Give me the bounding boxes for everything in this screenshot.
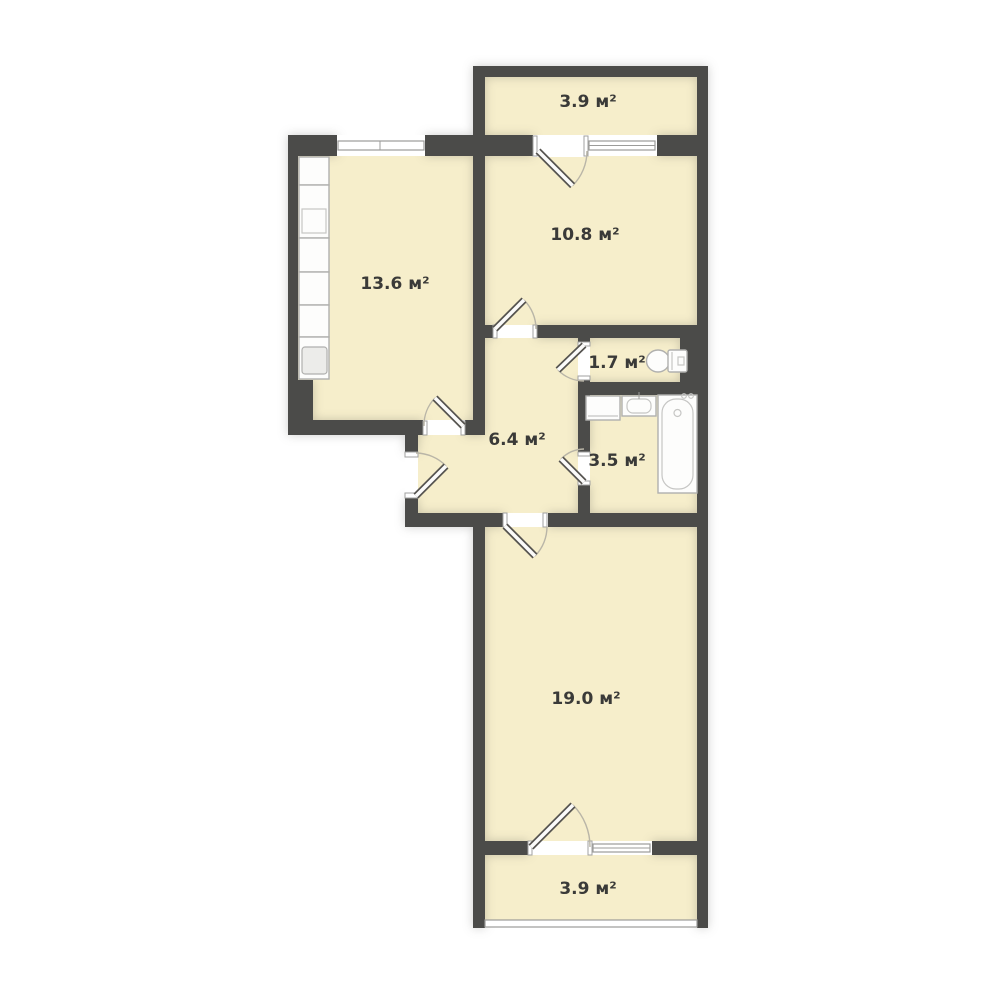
bathtub [658, 394, 697, 493]
label-hall: 6.4 м² [488, 430, 545, 450]
kitchen-counter [299, 157, 329, 379]
label-kitchen: 13.6 м² [360, 274, 429, 294]
label-bathroom: 3.5 м² [588, 451, 645, 471]
washing-machine [586, 396, 620, 420]
kitchen-window [337, 135, 425, 156]
kitchen-sink [302, 347, 327, 374]
label-room-19-0: 19.0 м² [551, 689, 620, 709]
label-balcony-bottom: 3.9 м² [559, 879, 616, 899]
label-wc: 1.7 м² [588, 353, 645, 373]
room-floors [293, 70, 705, 925]
balcony-top-window [588, 135, 657, 156]
label-balcony-top: 3.9 м² [559, 92, 616, 112]
floor-plan: 3.9 м² 10.8 м² 13.6 м² 1.7 м² 6.4 м² 3.5… [0, 0, 1000, 1000]
room-19-0 [480, 520, 700, 850]
balcony-glazing [485, 920, 697, 927]
bathroom-sink [622, 392, 656, 416]
balcony-bottom-window [592, 841, 652, 855]
label-room-10-8: 10.8 м² [550, 225, 619, 245]
floor-plan-page: 3.9 м² 10.8 м² 13.6 м² 1.7 м² 6.4 м² 3.5… [0, 0, 1000, 1000]
toilet [647, 350, 688, 372]
